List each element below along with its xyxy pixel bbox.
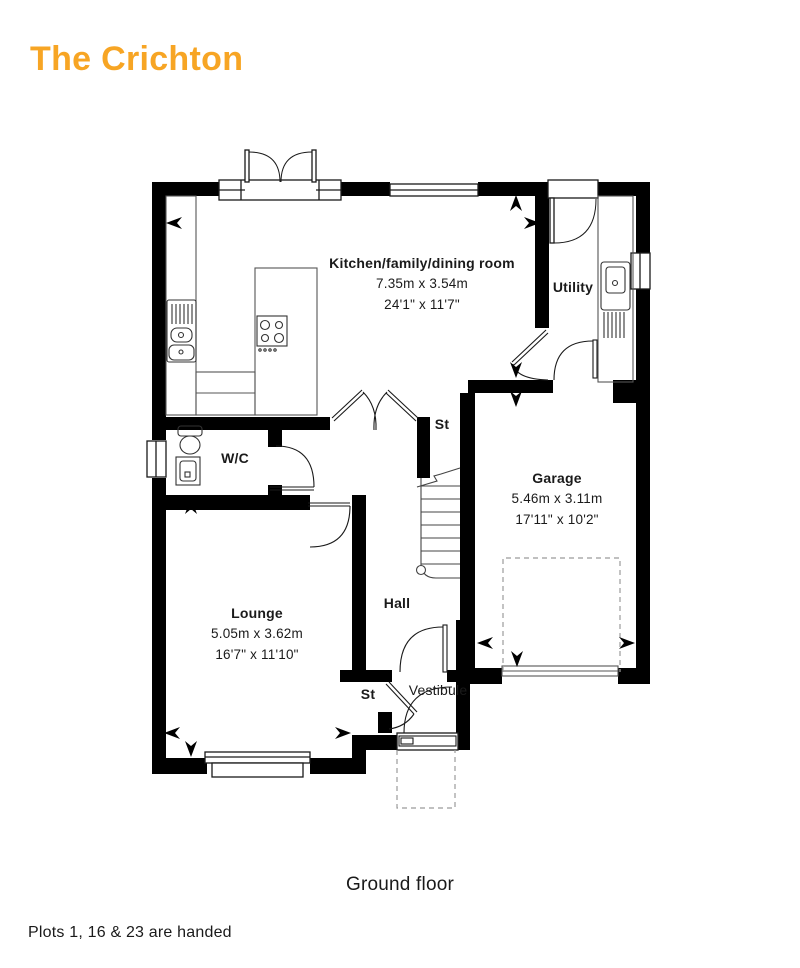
opening-arrow-icon <box>510 195 522 211</box>
floor-caption: Ground floor <box>346 874 454 896</box>
hob-icon <box>257 316 287 351</box>
vestibule-inner-door <box>400 625 447 672</box>
room-name: W/C <box>221 451 249 465</box>
room-dim-imperial: 24'1" x 11'7" <box>329 298 515 312</box>
room-label-garage: Garage 5.46m x 3.11m 17'11" x 10'2" <box>512 471 603 526</box>
lounge-door <box>308 503 350 547</box>
room-dim-metric: 5.05m x 3.62m <box>211 627 303 641</box>
wc-door <box>270 446 314 490</box>
toilet-icon <box>178 426 202 454</box>
room-name: Kitchen/family/dining room <box>329 256 515 270</box>
utility-garage-door <box>554 340 597 380</box>
opening-arrow-icon <box>164 727 180 739</box>
room-dim-metric: 5.46m x 3.11m <box>512 492 603 506</box>
room-dim-metric: 7.35m x 3.54m <box>329 277 515 291</box>
room-name: Hall <box>384 596 410 610</box>
room-dim-imperial: 16'7" x 11'10" <box>211 648 303 662</box>
opening-arrow-icon <box>166 217 182 229</box>
room-name: St <box>435 417 449 431</box>
room-label-lounge: Lounge 5.05m x 3.62m 16'7" x 11'10" <box>211 606 303 661</box>
floor-plan <box>0 0 800 968</box>
kitchen-double-door <box>332 390 418 430</box>
utility-external-door <box>548 180 598 243</box>
opening-arrow-icon <box>510 362 522 378</box>
garage-door <box>502 666 618 676</box>
basin-icon <box>176 457 200 485</box>
room-name: Utility <box>553 280 593 294</box>
room-dim-imperial: 17'11" x 10'2" <box>512 513 603 527</box>
utility-units <box>598 196 633 382</box>
room-name: Garage <box>512 471 603 485</box>
opening-arrow-icon <box>619 637 635 649</box>
opening-arrow-icon <box>185 741 197 757</box>
entrance-canopy <box>397 750 455 808</box>
kitchen-sink-icon <box>167 300 196 362</box>
opening-arrow-icon <box>477 637 493 649</box>
lounge-window <box>205 752 310 777</box>
kitchen-units <box>166 196 317 415</box>
utility-sink-icon <box>601 262 630 338</box>
opening-arrow-icon <box>511 651 523 667</box>
plots-footnote: Plots 1, 16 & 23 are handed <box>28 924 232 942</box>
utility-window <box>631 253 650 289</box>
stairs <box>417 468 461 578</box>
room-name: Vestibule <box>409 683 468 697</box>
room-label-utility: Utility <box>553 280 593 294</box>
opening-arrow-icon <box>335 727 351 739</box>
opening-arrow-icon <box>510 391 522 407</box>
room-label-store-lower: St <box>361 687 375 701</box>
room-label-wc: W/C <box>221 451 249 465</box>
kitchen-window <box>390 184 478 196</box>
room-label-kitchen: Kitchen/family/dining room 7.35m x 3.54m… <box>329 256 515 311</box>
room-label-store-upper: St <box>435 417 449 431</box>
room-label-hall: Hall <box>384 596 410 610</box>
french-doors <box>219 150 341 200</box>
room-label-vestibule: Vestibule <box>409 683 468 697</box>
room-name: Lounge <box>211 606 303 620</box>
room-name: St <box>361 687 375 701</box>
stair-newel <box>417 566 426 575</box>
wc-window <box>147 441 166 477</box>
